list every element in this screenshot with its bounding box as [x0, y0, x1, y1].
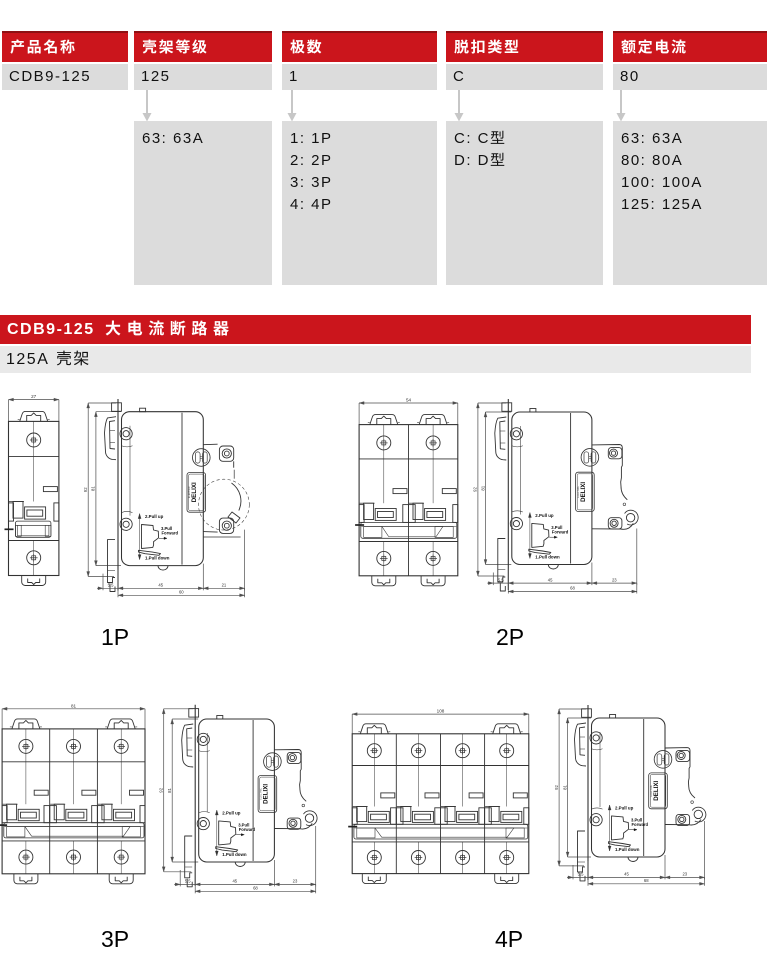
svg-text:2.Pull up: 2.Pull up — [615, 806, 634, 811]
svg-text:45: 45 — [158, 583, 163, 588]
svg-text:Forward: Forward — [239, 827, 256, 832]
svg-text:5.5: 5.5 — [185, 879, 191, 884]
svg-text:23: 23 — [293, 879, 298, 884]
svg-text:ELECTRIC: ELECTRIC — [577, 486, 580, 498]
svg-text:92: 92 — [554, 785, 559, 790]
svg-text:68: 68 — [253, 886, 258, 891]
svg-text:ELECTRIC: ELECTRIC — [188, 486, 191, 498]
svg-text:ELECTRIC: ELECTRIC — [259, 788, 262, 800]
svg-text:68: 68 — [644, 878, 649, 883]
svg-text:81: 81 — [480, 485, 485, 490]
svg-text:DELIXI: DELIXI — [653, 781, 660, 801]
svg-text:ELECTRIC: ELECTRIC — [650, 785, 653, 797]
svg-text:21: 21 — [222, 583, 227, 588]
svg-text:54: 54 — [406, 398, 412, 403]
svg-text:DELIXI: DELIXI — [262, 784, 269, 804]
svg-text:45: 45 — [548, 577, 553, 582]
svg-text:1.Pull down: 1.Pull down — [615, 847, 640, 852]
svg-text:Forward: Forward — [632, 822, 649, 827]
svg-text:27: 27 — [31, 394, 37, 399]
svg-text:5.5: 5.5 — [578, 872, 584, 877]
svg-text:5.5: 5.5 — [108, 583, 114, 588]
svg-text:1.Pull down: 1.Pull down — [145, 556, 170, 561]
svg-text:Forward: Forward — [552, 530, 569, 535]
svg-text:1.Pull down: 1.Pull down — [535, 555, 560, 560]
svg-text:92: 92 — [159, 787, 164, 792]
svg-text:45: 45 — [624, 872, 629, 877]
svg-text:2.Pull up: 2.Pull up — [145, 514, 164, 519]
svg-text:81: 81 — [71, 703, 77, 708]
svg-text:108: 108 — [437, 709, 445, 714]
svg-text:1.Pull down: 1.Pull down — [222, 852, 247, 857]
svg-text:45: 45 — [232, 879, 237, 884]
svg-text:DELIXI: DELIXI — [191, 482, 198, 502]
svg-text:23: 23 — [682, 872, 687, 877]
svg-text:Forward: Forward — [162, 531, 179, 536]
svg-text:81: 81 — [91, 486, 96, 491]
svg-text:92: 92 — [473, 487, 478, 492]
svg-text:92: 92 — [83, 487, 88, 492]
svg-text:81: 81 — [167, 788, 172, 793]
svg-text:DELIXI: DELIXI — [580, 482, 587, 502]
svg-text:2.Pull up: 2.Pull up — [222, 811, 241, 816]
svg-text:81: 81 — [562, 785, 567, 790]
svg-text:68: 68 — [570, 586, 575, 591]
svg-text:5.5: 5.5 — [498, 577, 504, 582]
svg-text:23: 23 — [612, 577, 617, 582]
svg-text:60: 60 — [179, 590, 184, 595]
svg-text:2.Pull up: 2.Pull up — [535, 513, 554, 518]
